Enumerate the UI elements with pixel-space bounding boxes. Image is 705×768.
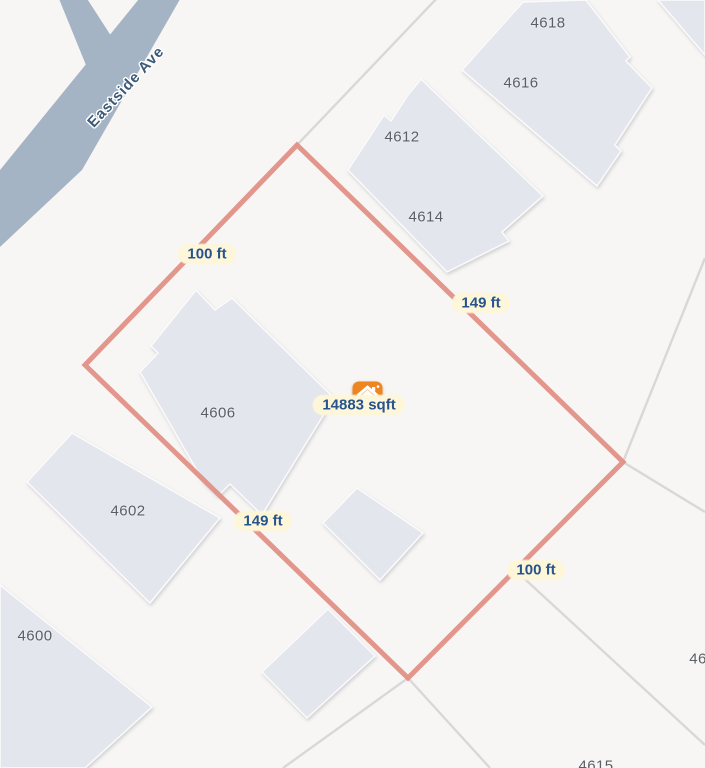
building-footprint-south xyxy=(262,609,375,718)
parcel-line xyxy=(623,258,705,462)
house-number-label: 46 xyxy=(689,651,705,668)
lot-dimension-label: 100 ft xyxy=(507,561,564,580)
house-number-label: 4618 xyxy=(531,15,566,32)
house-number-label: 4602 xyxy=(111,503,146,520)
parcel-line xyxy=(515,570,705,745)
parcel-line xyxy=(408,678,490,768)
house-number-label: 4614 xyxy=(409,209,444,226)
house-number-label: 4606 xyxy=(201,405,236,422)
lot-area-label: 14883 sqft xyxy=(313,396,404,415)
building-footprint-garage xyxy=(323,488,423,580)
house-number-label: 4600 xyxy=(18,628,53,645)
lot-dimension-label: 100 ft xyxy=(178,245,235,264)
house-number-label: 4616 xyxy=(504,75,539,92)
building-footprint-4600 xyxy=(0,585,152,768)
building-footprint-4606 xyxy=(140,290,334,515)
parcel-map[interactable]: Eastside Ave 4618 4616 4612 4614 4606 46… xyxy=(0,0,705,768)
parcel-line xyxy=(623,462,705,512)
building-footprint-corner xyxy=(658,0,705,55)
house-number-label: 4615 xyxy=(579,758,614,768)
lot-dimension-label: 149 ft xyxy=(234,512,291,531)
lot-dimension-label: 149 ft xyxy=(452,294,509,313)
house-number-label: 4612 xyxy=(385,129,420,146)
